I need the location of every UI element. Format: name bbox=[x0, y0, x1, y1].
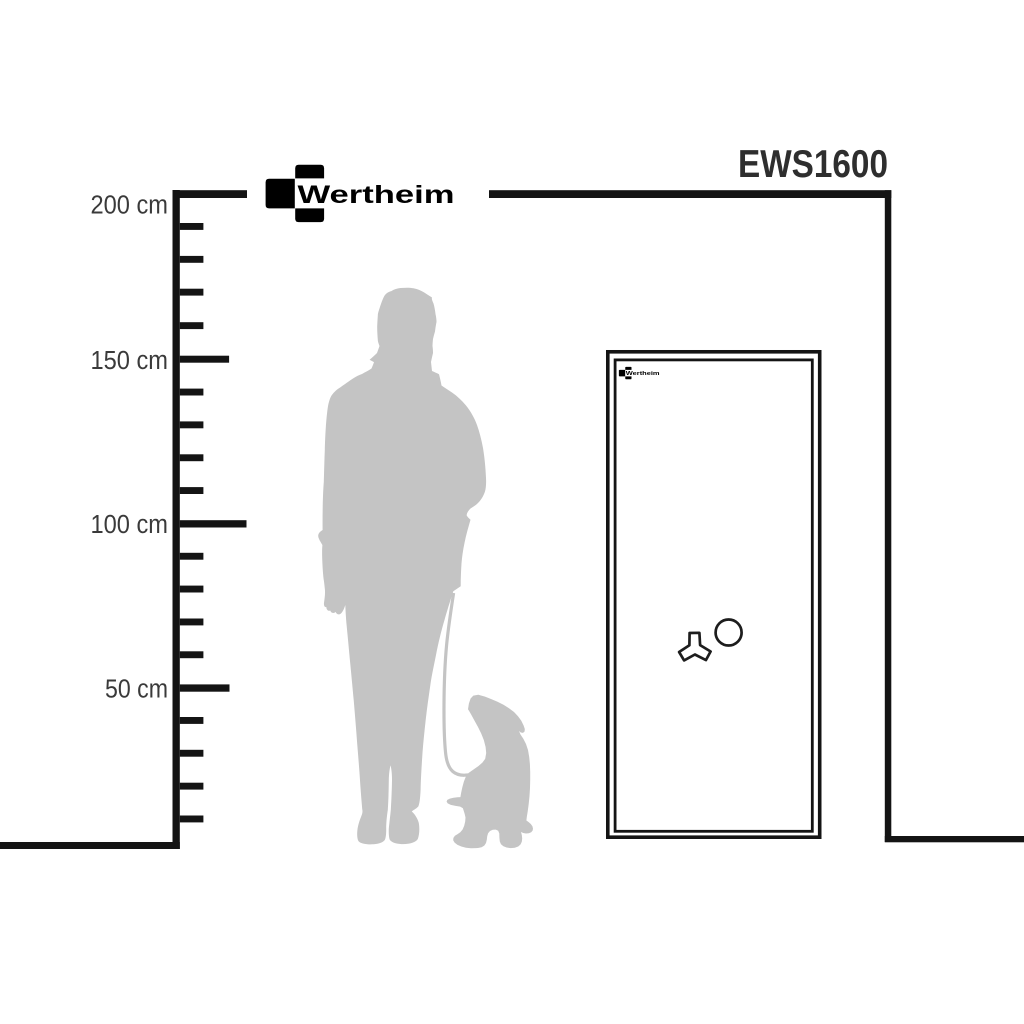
svg-text:100 cm: 100 cm bbox=[91, 511, 169, 539]
svg-text:50 cm: 50 cm bbox=[105, 676, 168, 704]
svg-text:200 cm: 200 cm bbox=[91, 192, 169, 220]
svg-text:150 cm: 150 cm bbox=[91, 347, 169, 375]
svg-text:EWS1600: EWS1600 bbox=[738, 143, 888, 186]
